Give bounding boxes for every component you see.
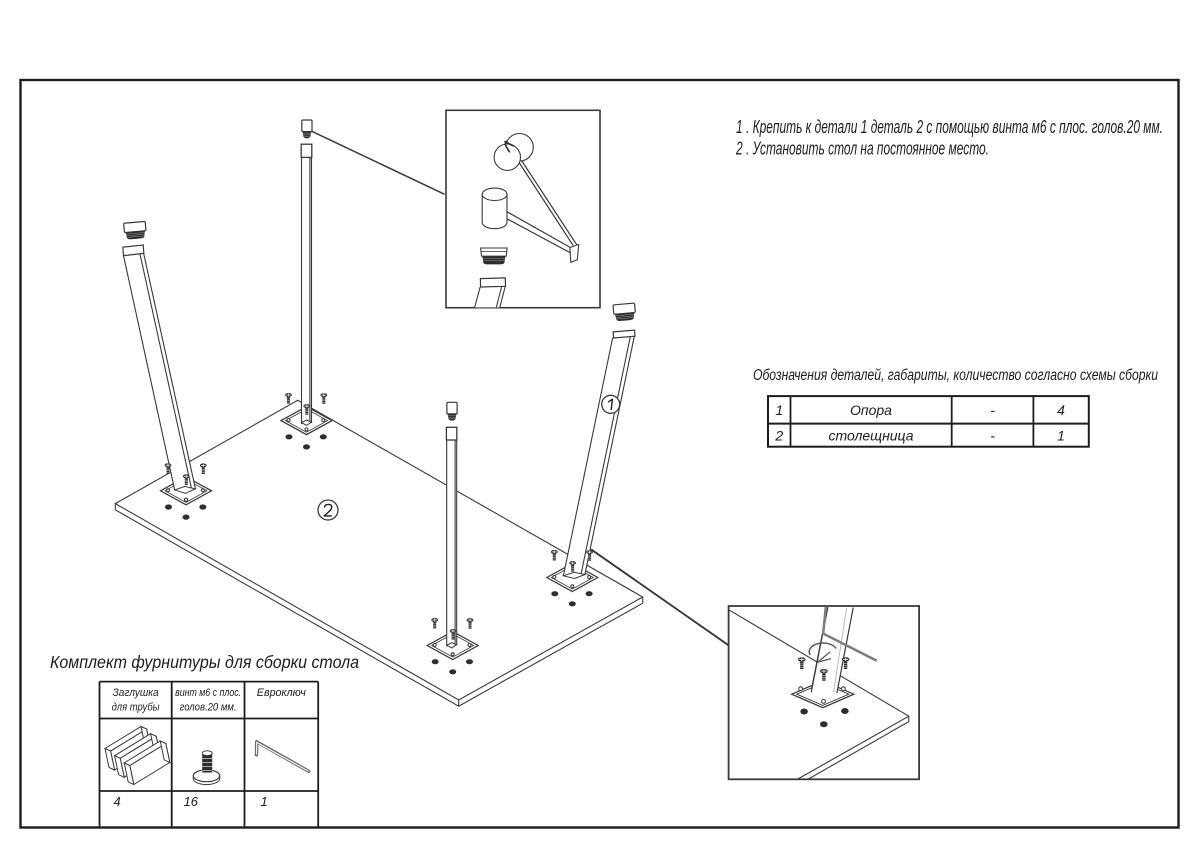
svg-text:2: 2 <box>774 428 783 444</box>
svg-text:-: - <box>990 402 995 418</box>
svg-text:Заглушка: Заглушка <box>113 687 159 699</box>
svg-text:1: 1 <box>1057 428 1065 444</box>
svg-text:2 . Установить стол на постоян: 2 . Установить стол на постоянное место. <box>735 139 989 159</box>
svg-text:1: 1 <box>261 794 268 809</box>
svg-text:винт м6 с плос.: винт м6 с плос. <box>175 687 241 699</box>
svg-text:Опора: Опора <box>850 402 892 418</box>
svg-text:столещница: столещница <box>828 428 913 444</box>
svg-text:Обозначения деталей, габариты,: Обозначения деталей, габариты, количеств… <box>753 367 1158 384</box>
svg-text:1: 1 <box>775 402 783 418</box>
svg-text:для трубы: для трубы <box>112 702 160 714</box>
svg-text:-: - <box>990 428 995 444</box>
svg-text:4: 4 <box>114 794 121 809</box>
svg-text:1 . Крепить к детали 1 деталь: 1 . Крепить к детали 1 деталь 2 с помощь… <box>736 117 1163 137</box>
svg-text:голов.20 мм.: голов.20 мм. <box>180 702 237 714</box>
svg-text:Комплект фурнитуры для сборки: Комплект фурнитуры для сборки стола <box>50 652 359 672</box>
svg-text:16: 16 <box>184 794 199 809</box>
svg-text:4: 4 <box>1057 402 1065 418</box>
svg-text:Евроключ: Евроключ <box>257 687 306 699</box>
